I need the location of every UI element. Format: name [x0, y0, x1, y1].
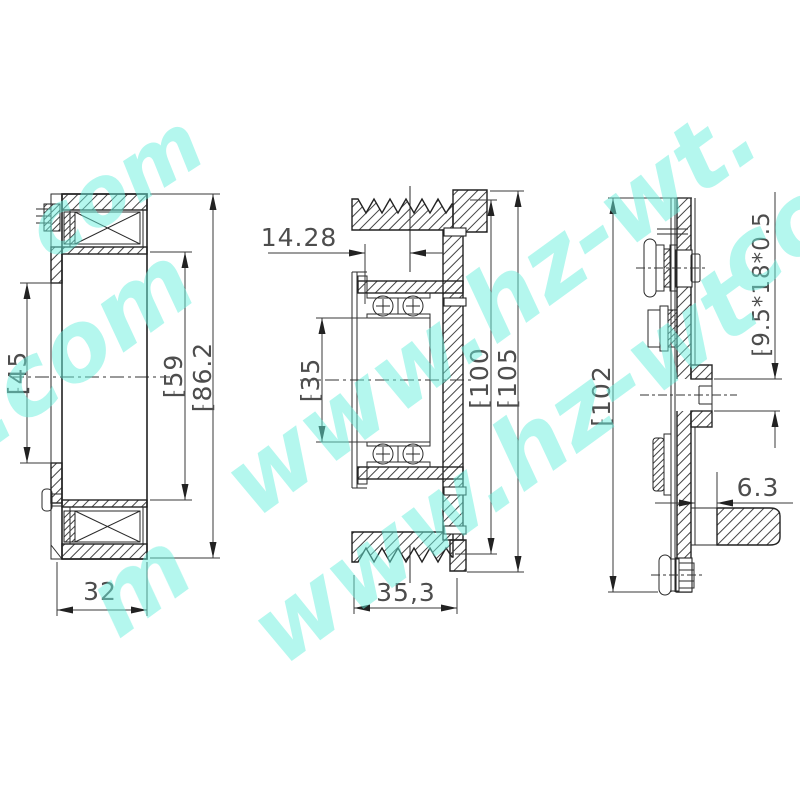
dim-hub-gap: 6.3 — [655, 472, 793, 508]
dim-label-coil-pole: ⁅59 — [159, 354, 188, 399]
watermark-layer: t.com com www.hz-wt. m www.hz-wt co — [0, 77, 800, 687]
hub-lower-spring — [653, 434, 671, 495]
dim-label-groove-offset: 14.28 — [261, 223, 338, 252]
dim-label-hub-gap: 6.3 — [737, 473, 780, 502]
watermark-text: m — [66, 509, 213, 658]
engineering-drawing-page: ⁅45 ⁅59 ⁅86.2 32 — [0, 0, 800, 800]
pulley-flange-top — [453, 190, 487, 232]
engineering-drawing-canvas: ⁅45 ⁅59 ⁅86.2 32 — [0, 0, 800, 800]
dim-label-coil-outer: ⁅86.2 — [188, 342, 217, 412]
hub-foot — [691, 508, 780, 545]
pulley-top-rim — [352, 199, 453, 230]
